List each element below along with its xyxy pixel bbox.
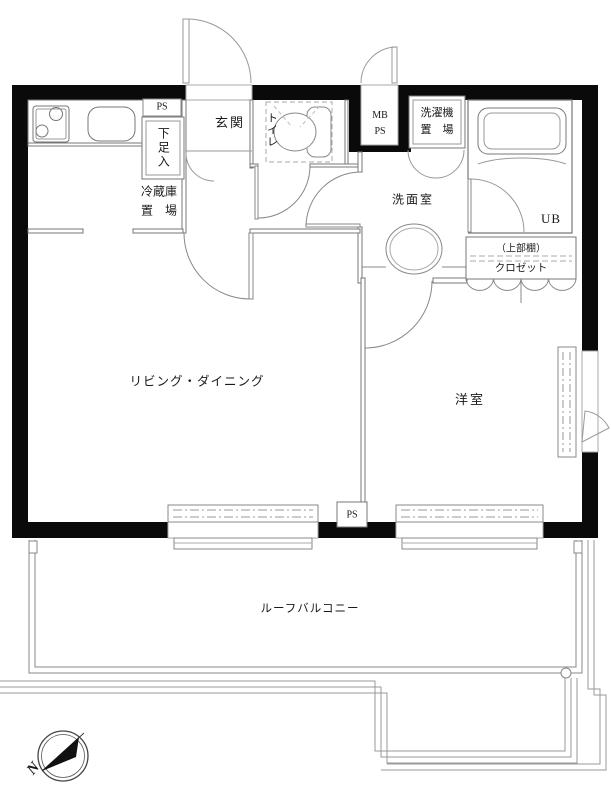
label-toilet: トイレ — [262, 112, 279, 148]
entrance-opening — [186, 85, 252, 100]
wash-basin — [386, 224, 442, 274]
floor-plan-drawing — [0, 0, 611, 800]
label-washroom: 洗面室 — [392, 191, 434, 210]
wall-right — [582, 85, 598, 538]
wall-hall-living — [250, 229, 360, 233]
window-opening-right — [396, 522, 543, 538]
balcony-rail-post-left — [29, 541, 37, 553]
label-washer-space: 洗濯機 置 場 — [421, 105, 454, 139]
wall-entrance-toilet — [250, 100, 253, 168]
wall-washroom-left-lower — [358, 227, 362, 283]
balcony-rail-post-right — [574, 541, 582, 553]
label-meter-box-line1: MB — [372, 108, 388, 124]
window-right-frame — [396, 505, 543, 522]
wall-washroom-left-upper — [358, 152, 362, 172]
window-opening-east — [582, 351, 598, 452]
meter-box-door-leaf — [392, 47, 397, 83]
toilet-bowl — [274, 113, 316, 151]
label-entrance: 玄関 — [215, 113, 245, 133]
label-closet-upper-shelf: （上部棚） — [496, 241, 546, 257]
label-washer-space-line2: 置 場 — [421, 122, 454, 139]
label-living-dining: リビング・ダイニング — [129, 372, 264, 391]
label-fridge-space-line1: 冷蔵庫 — [141, 182, 177, 201]
label-unit-bath: UB — [541, 209, 561, 229]
label-fridge-space: 冷蔵庫 置 場 — [141, 182, 177, 219]
wall-stub-kitchen-living-b — [133, 229, 183, 233]
label-pipe-space-bottom: PS — [346, 507, 357, 523]
entrance-door-leaf — [183, 19, 189, 83]
label-washer-space-line1: 洗濯機 — [421, 105, 454, 122]
window-opening-left — [168, 522, 318, 538]
label-shoe-cabinet: 下足入 — [154, 127, 173, 169]
wall-living-western — [361, 278, 365, 522]
balcony-drain — [561, 668, 571, 678]
window-east-frame — [558, 347, 576, 457]
label-meter-box-line2: PS — [372, 124, 388, 140]
living-door-leaf — [249, 233, 253, 299]
label-western-room: 洋室 — [455, 390, 485, 410]
label-fridge-space-line2: 置 場 — [141, 201, 177, 220]
kitchen — [28, 100, 143, 146]
wall-washroom-western — [433, 278, 467, 283]
washroom-door-leaf — [306, 224, 360, 227]
wall-toilet-bottom-b — [310, 164, 358, 167]
label-pipe-space-top: PS — [156, 99, 167, 115]
toilet-door-leaf — [255, 166, 258, 219]
floor-plan: PS 下足入 玄関 トイレ 冷蔵庫 置 場 MB PS 洗濯機 置 場 洗面室 … — [0, 0, 611, 800]
label-roof-balcony: ルーフバルコニー — [260, 601, 359, 619]
label-meter-box: MB PS — [372, 108, 388, 140]
wall-left — [12, 85, 28, 538]
wall-stub-kitchen-living-a — [28, 229, 83, 233]
unit-bath-door-leaf — [468, 179, 471, 232]
window-left-frame — [168, 505, 318, 522]
wall-top — [12, 85, 598, 100]
wall-toilet-right — [345, 100, 348, 166]
label-closet: クロゼット — [495, 261, 548, 277]
